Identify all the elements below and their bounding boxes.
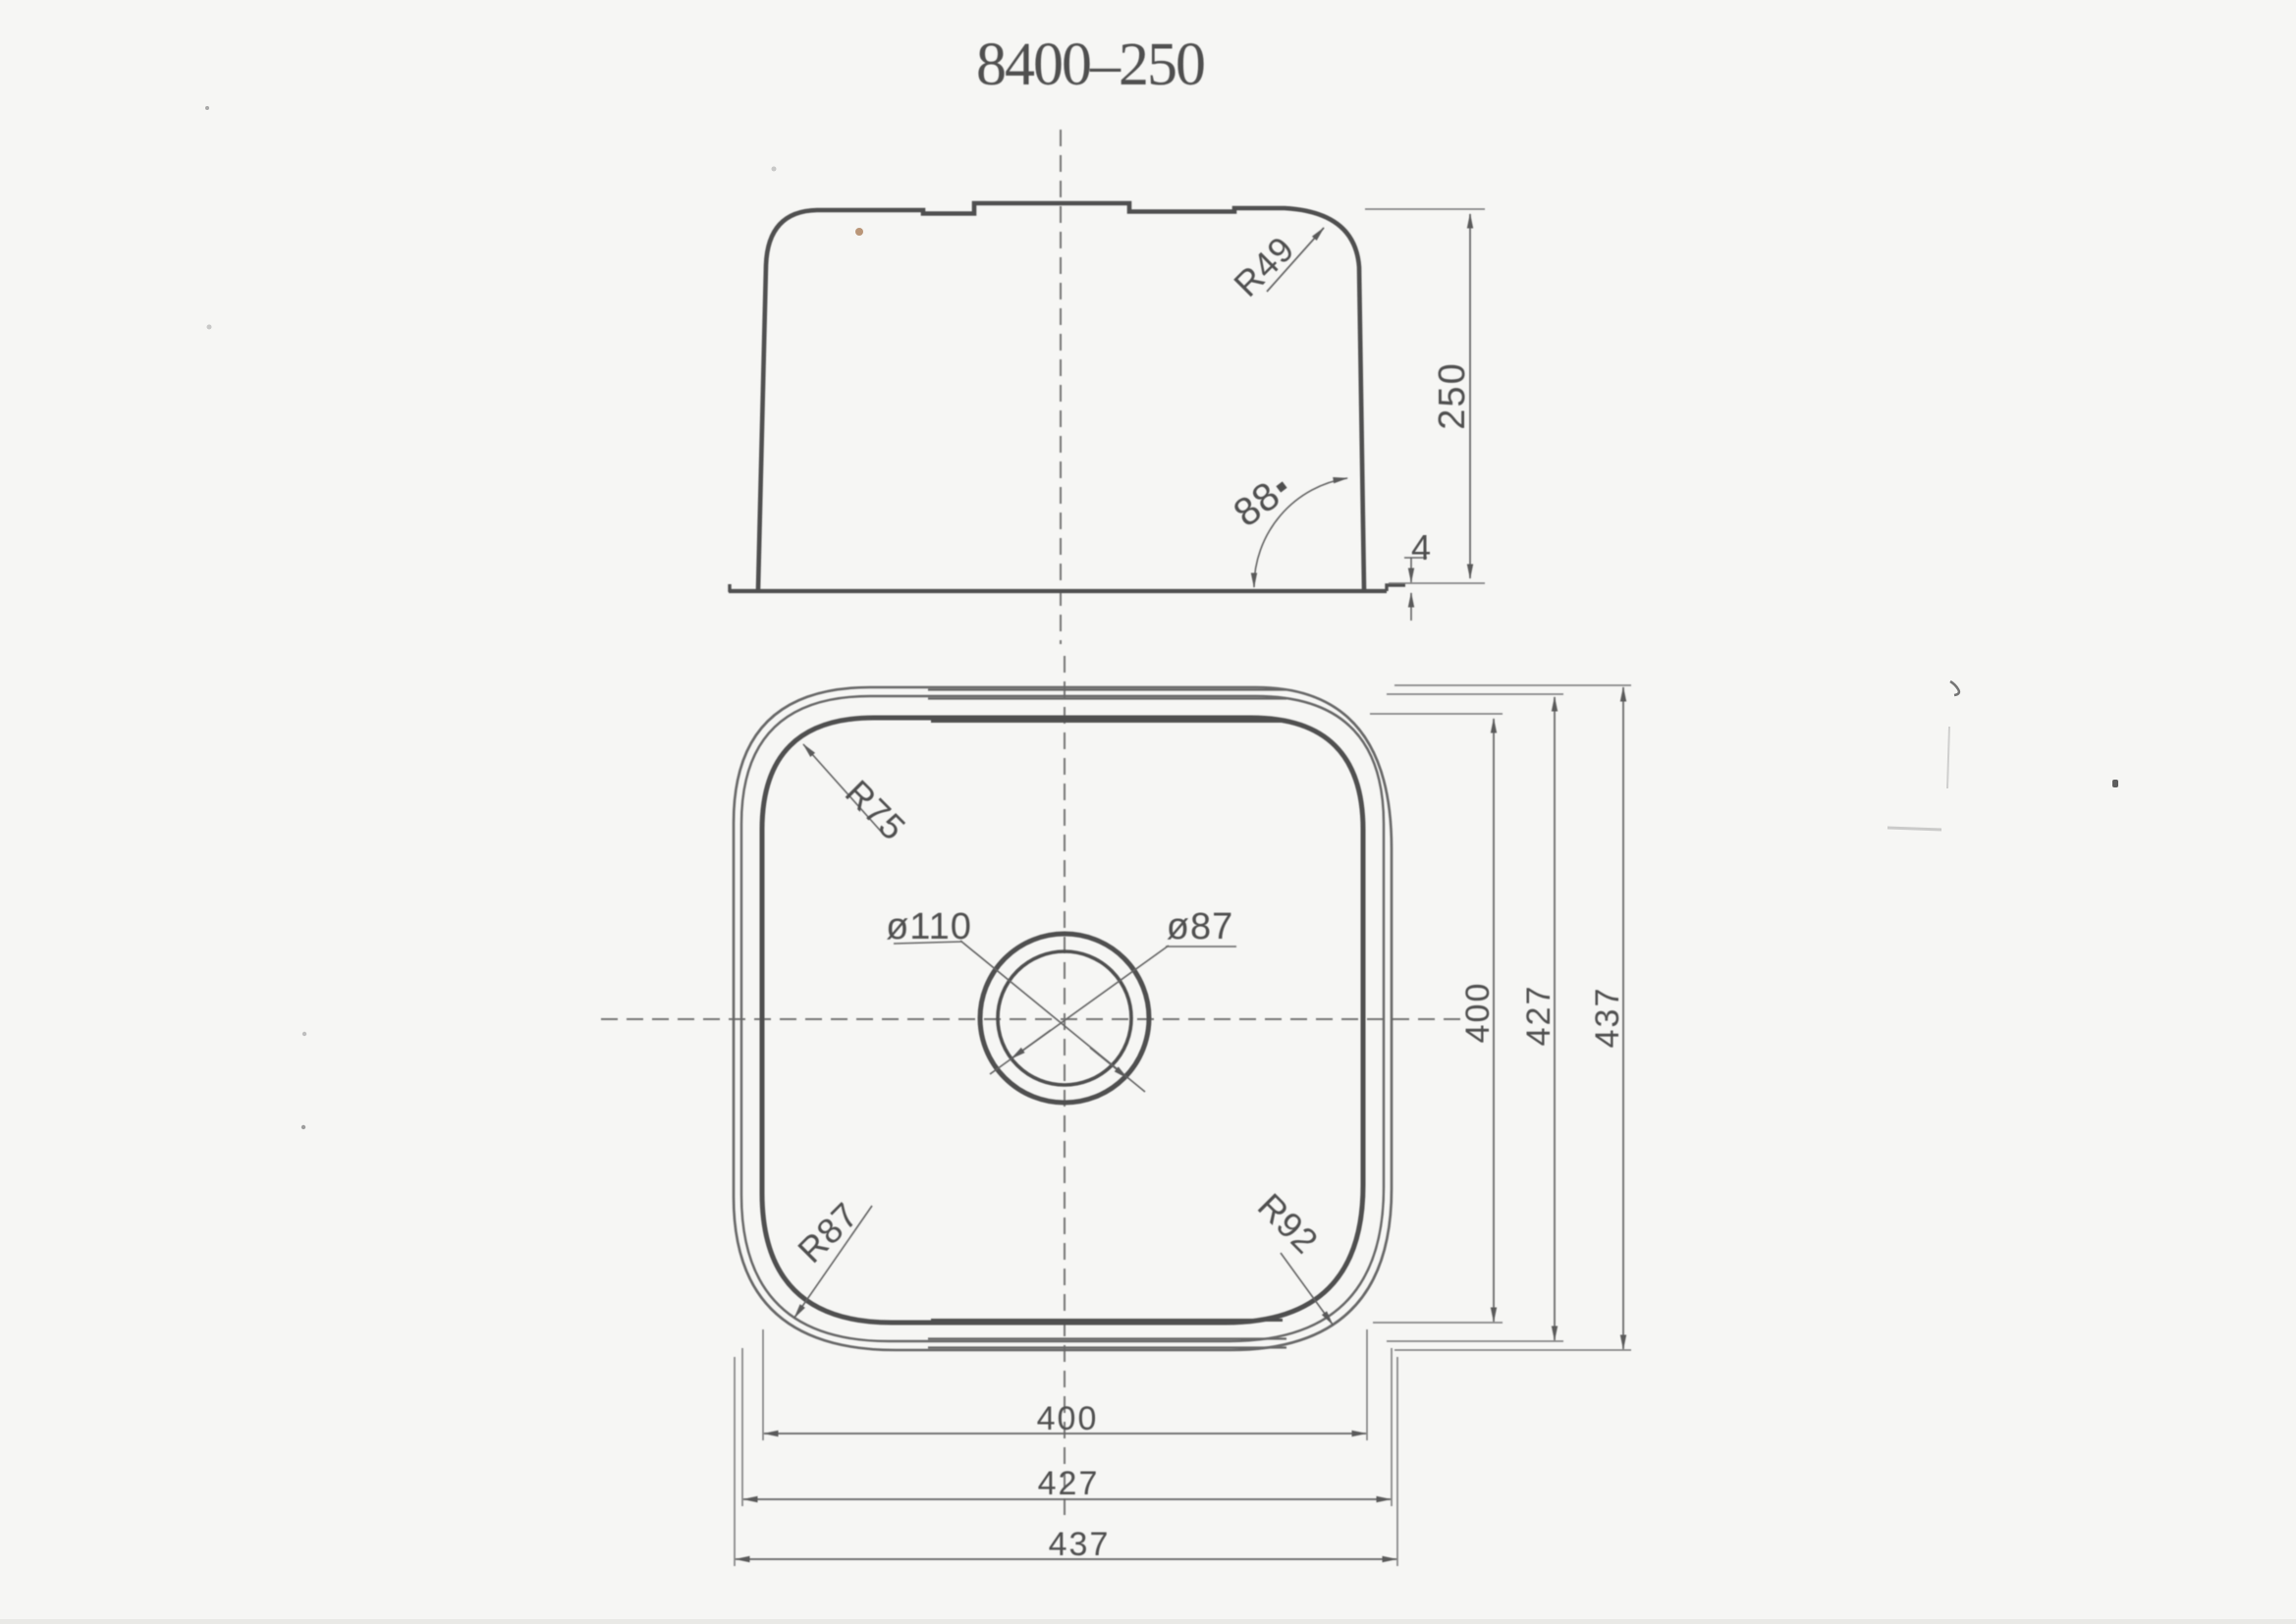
svg-text:400: 400: [1459, 982, 1497, 1044]
svg-text:ø87: ø87: [1167, 906, 1233, 947]
svg-text:437: 437: [1589, 987, 1626, 1049]
svg-text:250: 250: [1432, 361, 1473, 429]
svg-text:400: 400: [1037, 1400, 1099, 1437]
svg-text:427: 427: [1038, 1465, 1100, 1502]
svg-text:ø110: ø110: [886, 906, 972, 947]
svg-text:437: 437: [1049, 1526, 1111, 1563]
svg-text:8400–250: 8400–250: [976, 31, 1204, 98]
svg-text:4: 4: [1411, 527, 1431, 568]
svg-text:427: 427: [1520, 985, 1558, 1047]
